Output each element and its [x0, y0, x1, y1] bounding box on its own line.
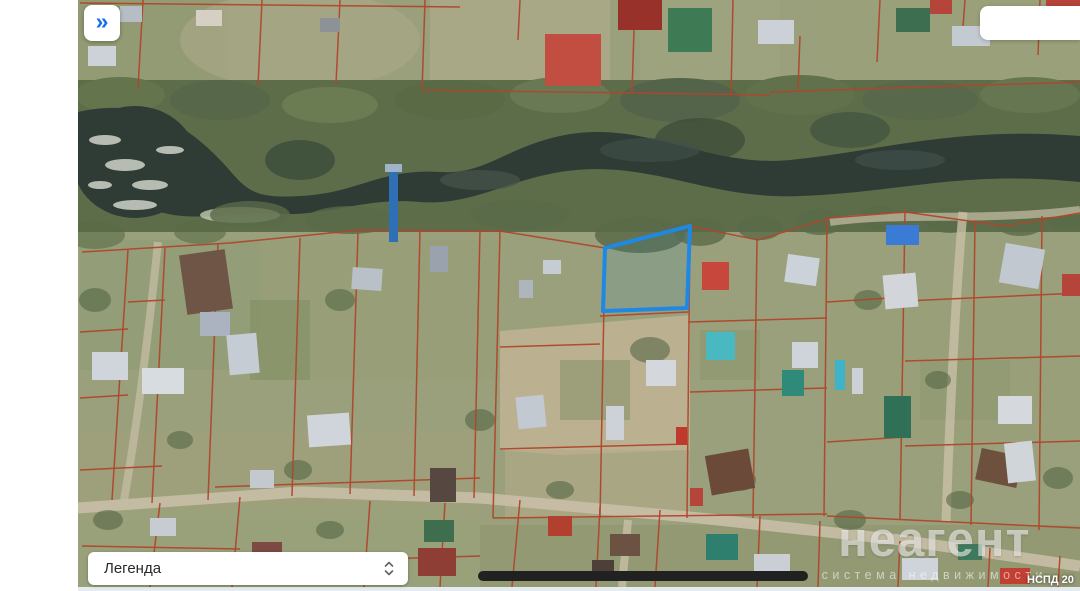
bottom-edge-strip — [78, 587, 1080, 591]
map-attribution: НСПД 20 — [1027, 574, 1074, 586]
bottom-scrollbar[interactable] — [478, 571, 808, 581]
expand-sidebar-button[interactable]: » — [84, 5, 120, 41]
legend-label: Легенда — [104, 560, 161, 577]
collapsed-panel[interactable] — [980, 6, 1080, 40]
unfold-icon — [383, 560, 395, 577]
satellite-imagery — [78, 0, 1080, 587]
legend-dropdown[interactable]: Легенда — [88, 552, 408, 585]
map-viewer-window: » Легенда неагент система недвижимости Н… — [0, 0, 1080, 591]
double-chevron-right-icon: » — [96, 10, 109, 33]
left-sidebar — [0, 0, 78, 591]
map-canvas[interactable] — [78, 0, 1080, 587]
